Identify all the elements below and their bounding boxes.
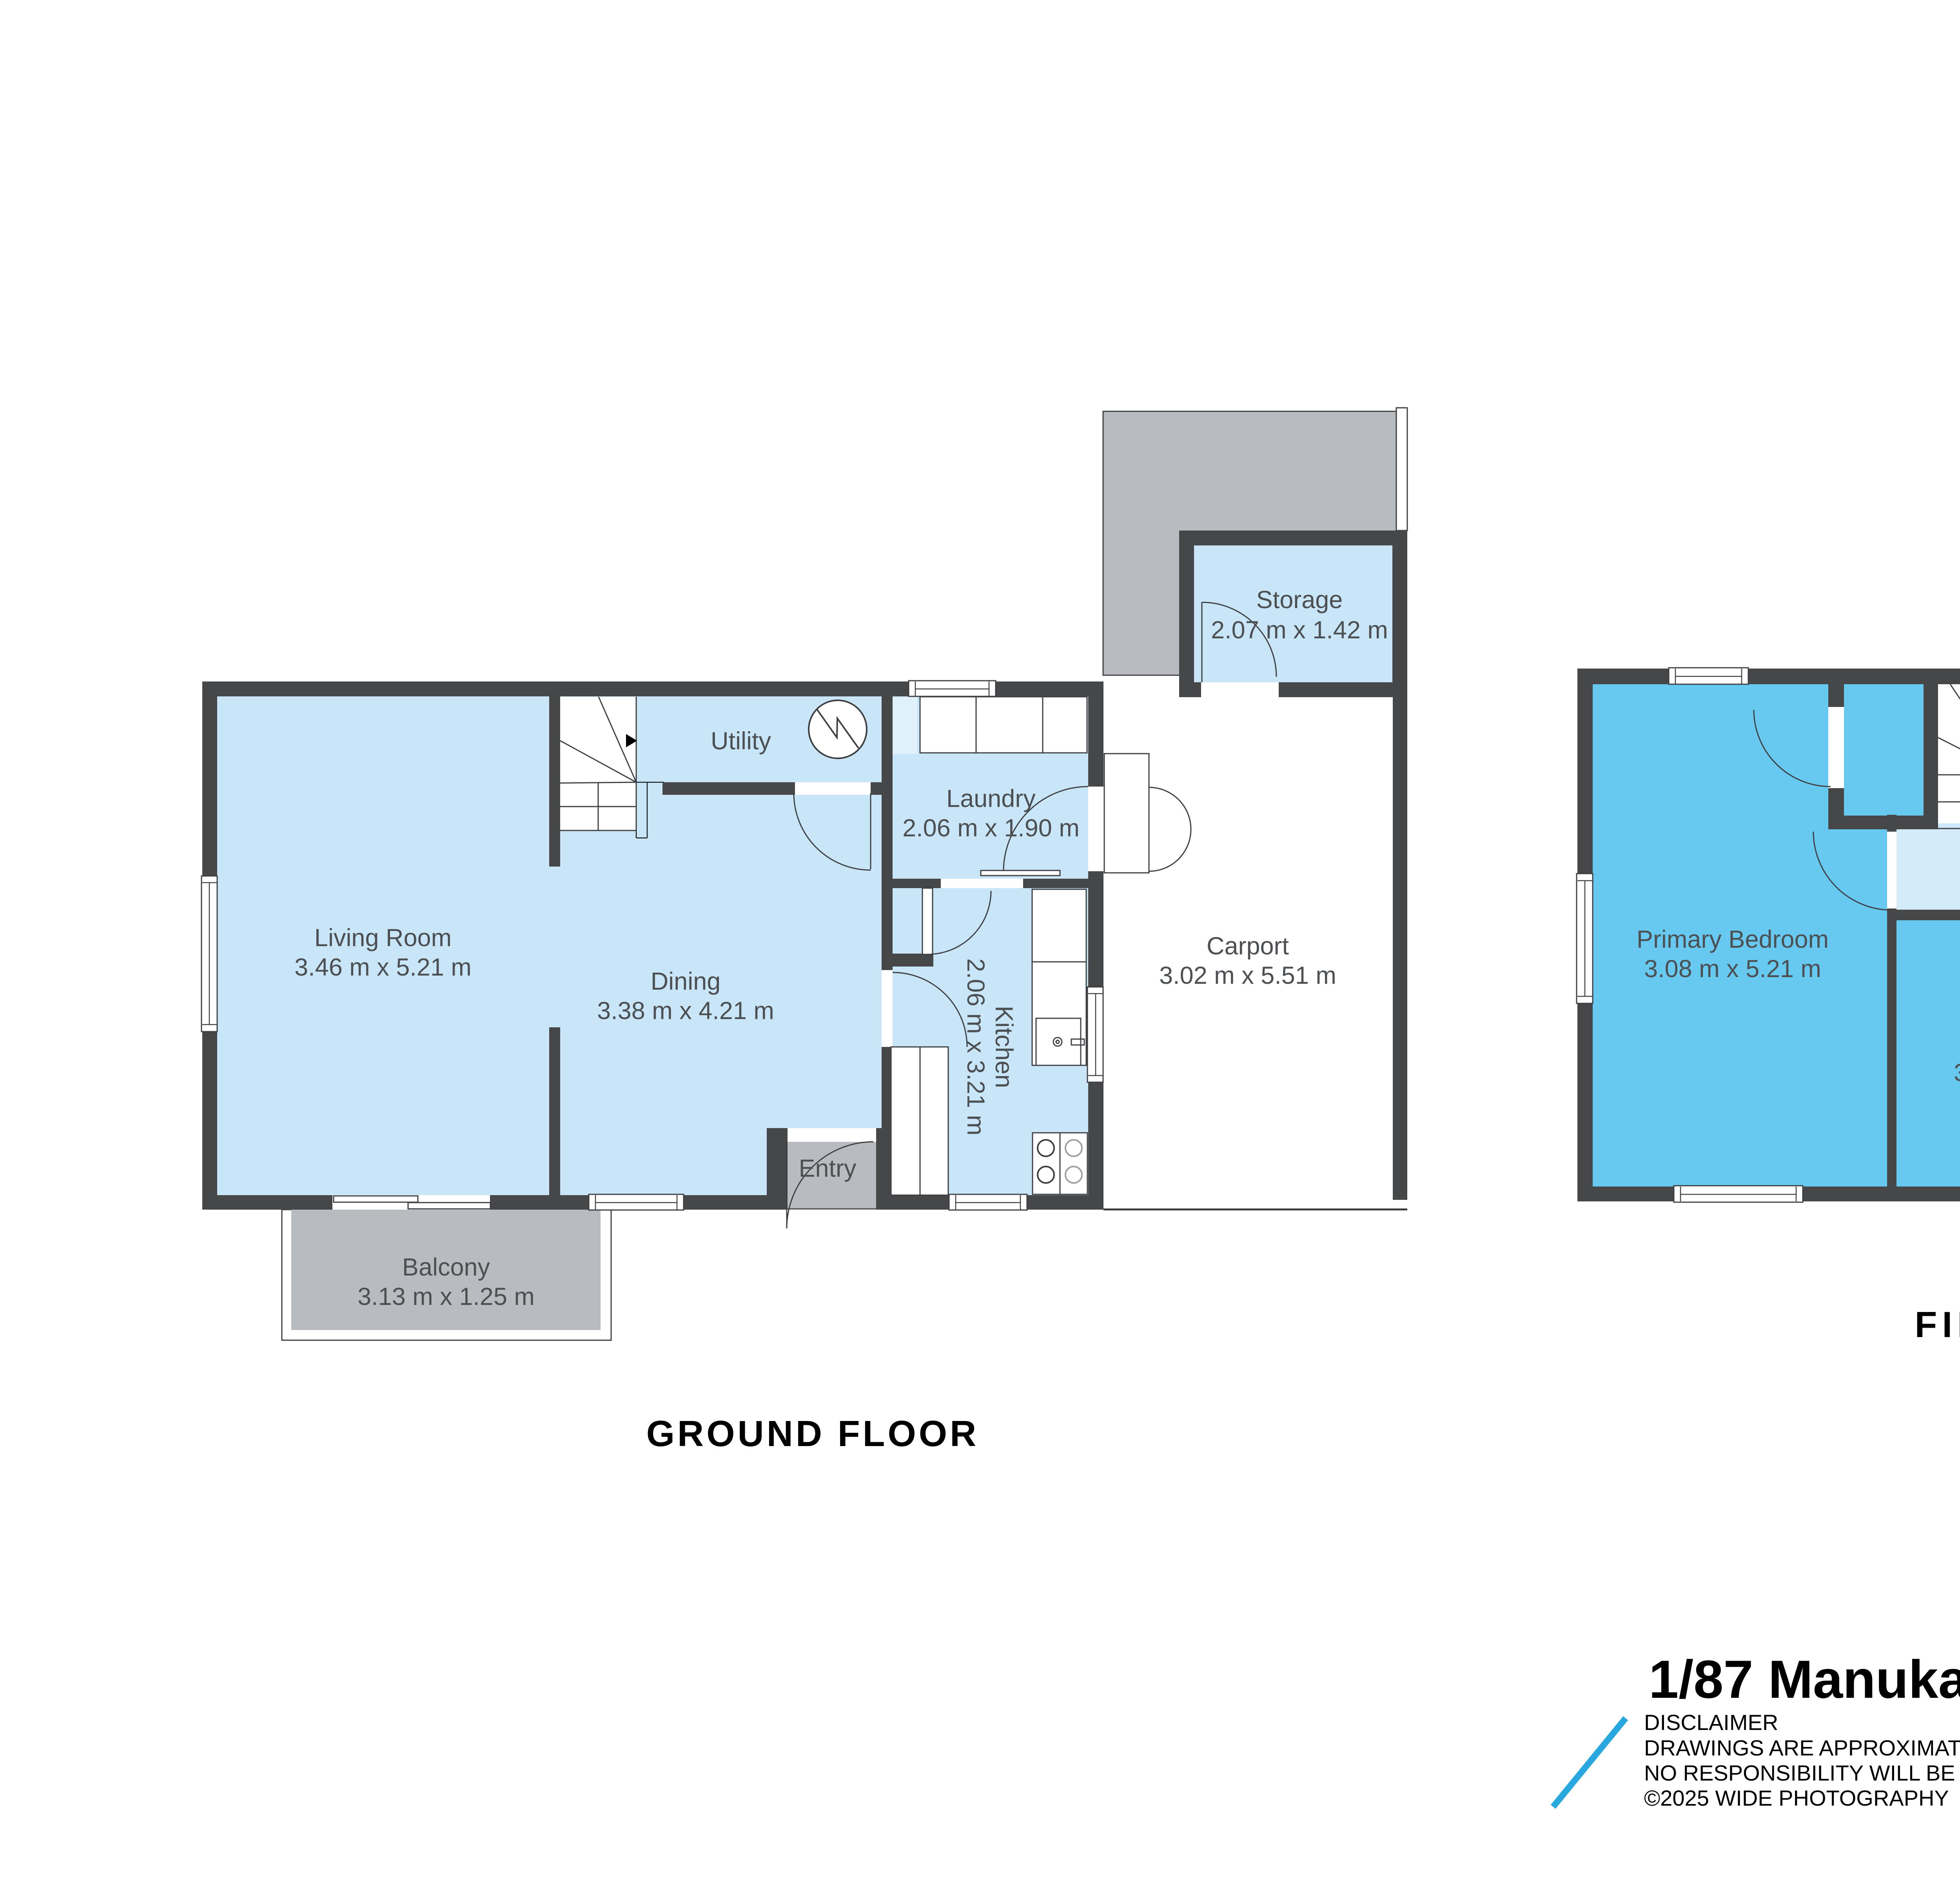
svg-text:1/87 Manuka Road, Bayview: 1/87 Manuka Road, Bayview xyxy=(1649,1650,1960,1710)
svg-text:Balcony: Balcony xyxy=(402,1254,490,1281)
svg-text:Kitchen: Kitchen xyxy=(990,1006,1018,1088)
svg-text:2.06 m x 3.21 m: 2.06 m x 3.21 m xyxy=(962,958,989,1136)
svg-text:GROUND FLOOR: GROUND FLOOR xyxy=(646,1413,979,1454)
svg-text:Laundry: Laundry xyxy=(946,785,1036,812)
svg-text:Utility: Utility xyxy=(711,727,771,755)
svg-text:Primary Bedroom: Primary Bedroom xyxy=(1637,926,1829,953)
svg-text:3.13 m x 1.25 m: 3.13 m x 1.25 m xyxy=(358,1283,535,1310)
svg-text:Carport: Carport xyxy=(1207,932,1289,960)
svg-text:3.46 m x 5.21 m: 3.46 m x 5.21 m xyxy=(294,954,472,981)
svg-text:Entry: Entry xyxy=(799,1155,857,1182)
svg-text:DISCLAIMER: DISCLAIMER xyxy=(1644,1710,1778,1735)
svg-text:FIRST FLOOR: FIRST FLOOR xyxy=(1915,1304,1960,1345)
svg-text:3.02 m x 5.51 m: 3.02 m x 5.51 m xyxy=(1159,962,1336,989)
svg-text:Dining: Dining xyxy=(651,968,721,995)
svg-text:DRAWINGS ARE APPROXIMATE AND F: DRAWINGS ARE APPROXIMATE AND FOR ILLUSTR… xyxy=(1644,1735,1960,1760)
svg-text:3.38 m x 4.21 m: 3.38 m x 4.21 m xyxy=(597,997,774,1025)
svg-text:3.34 m x 2.74 m: 3.34 m x 2.74 m xyxy=(1954,1059,1960,1087)
svg-text:2.06 m x 1.90 m: 2.06 m x 1.90 m xyxy=(902,814,1080,842)
svg-text:©2025 WIDE PHOTOGRAPHY: ©2025 WIDE PHOTOGRAPHY xyxy=(1644,1786,1949,1810)
svg-text:Storage: Storage xyxy=(1256,586,1343,614)
svg-text:Living Room: Living Room xyxy=(314,924,452,952)
svg-text:3.08 m x 5.21 m: 3.08 m x 5.21 m xyxy=(1644,955,1821,983)
svg-text:NO RESPONSIBILITY WILL BE TAKE: NO RESPONSIBILITY WILL BE TAKEN FOR ANY … xyxy=(1644,1761,1960,1785)
svg-text:2.07 m x 1.42 m: 2.07 m x 1.42 m xyxy=(1211,616,1388,644)
